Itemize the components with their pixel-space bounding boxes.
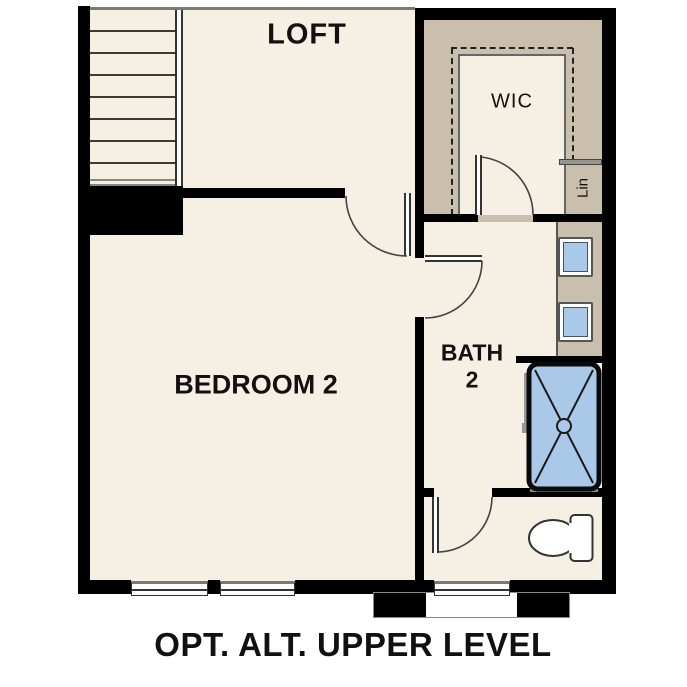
wall-wic-bottom-left (424, 214, 478, 222)
stair-tread (90, 32, 175, 54)
stairs (90, 8, 175, 179)
door-arc-loft-bedroom (346, 196, 407, 256)
door-arc-bath (425, 261, 482, 318)
wic-dashed-line-right (572, 48, 574, 161)
label-loft: LOFT (267, 19, 347, 52)
toilet (526, 512, 596, 564)
label-linen: Lin (575, 178, 592, 198)
label-bath: BATH (441, 340, 503, 367)
bay-block-right (517, 593, 569, 617)
stair-tread (90, 54, 175, 76)
wall-bedroom-bath (415, 317, 424, 580)
window-bath (434, 581, 510, 596)
wall-bottom-1 (78, 580, 131, 594)
window-pane-line (435, 589, 509, 591)
stair-tread (90, 76, 175, 98)
wall-top-wic (415, 8, 616, 20)
wall-wic-bottom-right (533, 214, 602, 222)
wall-bottom-2 (208, 580, 220, 594)
stair-landing-edge (90, 179, 175, 186)
door-arc-wic (481, 157, 533, 215)
stair-tread (90, 10, 175, 32)
stair-tread (90, 142, 175, 164)
label-wic: WIC (491, 91, 533, 114)
wall-toilet-stub (424, 488, 434, 497)
sink-1 (558, 237, 593, 277)
door-arc-toilet (438, 497, 492, 552)
window-bedroom-1 (131, 581, 208, 596)
wic-dashed-line-top (451, 47, 573, 49)
label-bedroom: BEDROOM 2 (174, 370, 338, 401)
open-edge-line (90, 7, 415, 10)
floor-plan: LOFT WIC Lin BEDROOM 2 BATH 2 OPT. ALT. … (0, 0, 687, 687)
wall-right-exterior (602, 8, 616, 594)
wall-left-exterior (78, 6, 90, 594)
stair-tread (90, 98, 175, 120)
window-pane-line (132, 589, 207, 591)
stair-tread (90, 120, 175, 142)
label-bath-2: 2 (466, 367, 479, 394)
bay-block-left (374, 593, 426, 617)
stair-railing (175, 8, 183, 188)
sink-2 (558, 302, 593, 342)
sink-basin (563, 307, 588, 337)
shower (526, 361, 602, 492)
window-bedroom-2 (220, 581, 295, 596)
wic-dashed-line-left (451, 48, 453, 215)
wall-wic-left (415, 20, 424, 258)
window-pane-line (221, 589, 294, 591)
plan-title: OPT. ALT. UPPER LEVEL (154, 626, 551, 664)
sink-basin (563, 242, 588, 272)
linen-shelf (559, 159, 602, 165)
wall-stair-landing-mass (78, 186, 183, 235)
